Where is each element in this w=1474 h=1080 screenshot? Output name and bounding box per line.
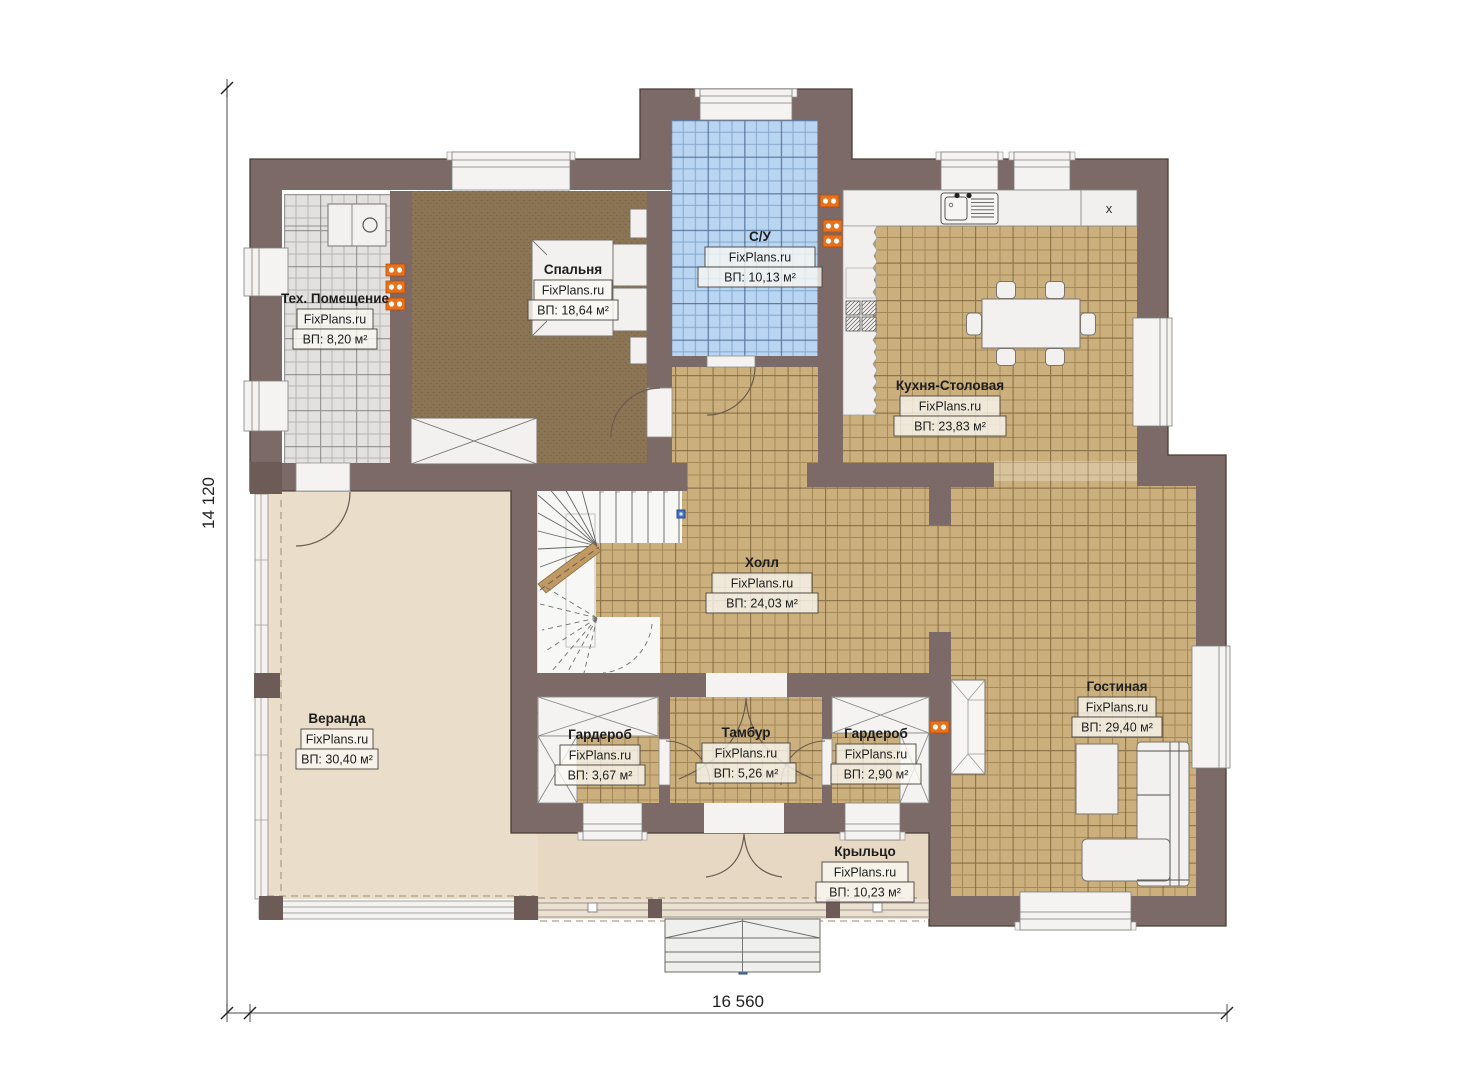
svg-text:FixPlans.ru: FixPlans.ru bbox=[729, 251, 792, 265]
svg-text:Тех. Помещение: Тех. Помещение bbox=[281, 291, 390, 306]
svg-text:ВП: 2,90 м²: ВП: 2,90 м² bbox=[844, 768, 909, 782]
svg-text:ВП: 24,03 м²: ВП: 24,03 м² bbox=[726, 597, 798, 611]
svg-text:FixPlans.ru: FixPlans.ru bbox=[569, 749, 632, 763]
svg-text:ВП: 3,67 м²: ВП: 3,67 м² bbox=[568, 769, 633, 783]
svg-text:FixPlans.ru: FixPlans.ru bbox=[919, 400, 982, 414]
svg-text:С/У: С/У bbox=[749, 229, 772, 244]
svg-text:FixPlans.ru: FixPlans.ru bbox=[834, 866, 897, 880]
svg-text:14 120: 14 120 bbox=[199, 477, 218, 529]
svg-text:Гардероб: Гардероб bbox=[844, 726, 908, 741]
svg-text:Холл: Холл bbox=[745, 555, 779, 570]
svg-text:FixPlans.ru: FixPlans.ru bbox=[1086, 701, 1149, 715]
svg-text:FixPlans.ru: FixPlans.ru bbox=[715, 747, 778, 761]
svg-text:Спальня: Спальня bbox=[544, 262, 602, 277]
svg-text:16 560: 16 560 bbox=[712, 992, 764, 1011]
svg-text:Веранда: Веранда bbox=[308, 711, 366, 726]
svg-text:FixPlans.ru: FixPlans.ru bbox=[306, 733, 369, 747]
svg-text:FixPlans.ru: FixPlans.ru bbox=[731, 577, 794, 591]
svg-text:ВП: 8,20 м²: ВП: 8,20 м² bbox=[303, 333, 368, 347]
svg-text:Гардероб: Гардероб bbox=[568, 727, 632, 742]
svg-text:ВП: 29,40 м²: ВП: 29,40 м² bbox=[1081, 721, 1153, 735]
svg-text:ВП: 23,83 м²: ВП: 23,83 м² bbox=[914, 420, 986, 434]
svg-text:FixPlans.ru: FixPlans.ru bbox=[845, 748, 908, 762]
svg-text:ВП: 5,26 м²: ВП: 5,26 м² bbox=[714, 767, 779, 781]
svg-text:x: x bbox=[1106, 201, 1113, 216]
svg-text:ВП: 30,40 м²: ВП: 30,40 м² bbox=[301, 753, 373, 767]
svg-text:ВП: 10,13 м²: ВП: 10,13 м² bbox=[724, 271, 796, 285]
svg-text:Кухня-Столовая: Кухня-Столовая bbox=[896, 378, 1004, 393]
svg-text:ВП: 18,64 м²: ВП: 18,64 м² bbox=[537, 304, 609, 318]
svg-text:FixPlans.ru: FixPlans.ru bbox=[304, 313, 367, 327]
svg-text:Тамбур: Тамбур bbox=[722, 725, 771, 740]
svg-text:FixPlans.ru: FixPlans.ru bbox=[542, 284, 605, 298]
svg-text:Гостиная: Гостиная bbox=[1086, 679, 1147, 694]
svg-text:Крыльцо: Крыльцо bbox=[834, 844, 895, 859]
svg-text:ВП: 10,23 м²: ВП: 10,23 м² bbox=[829, 886, 901, 900]
